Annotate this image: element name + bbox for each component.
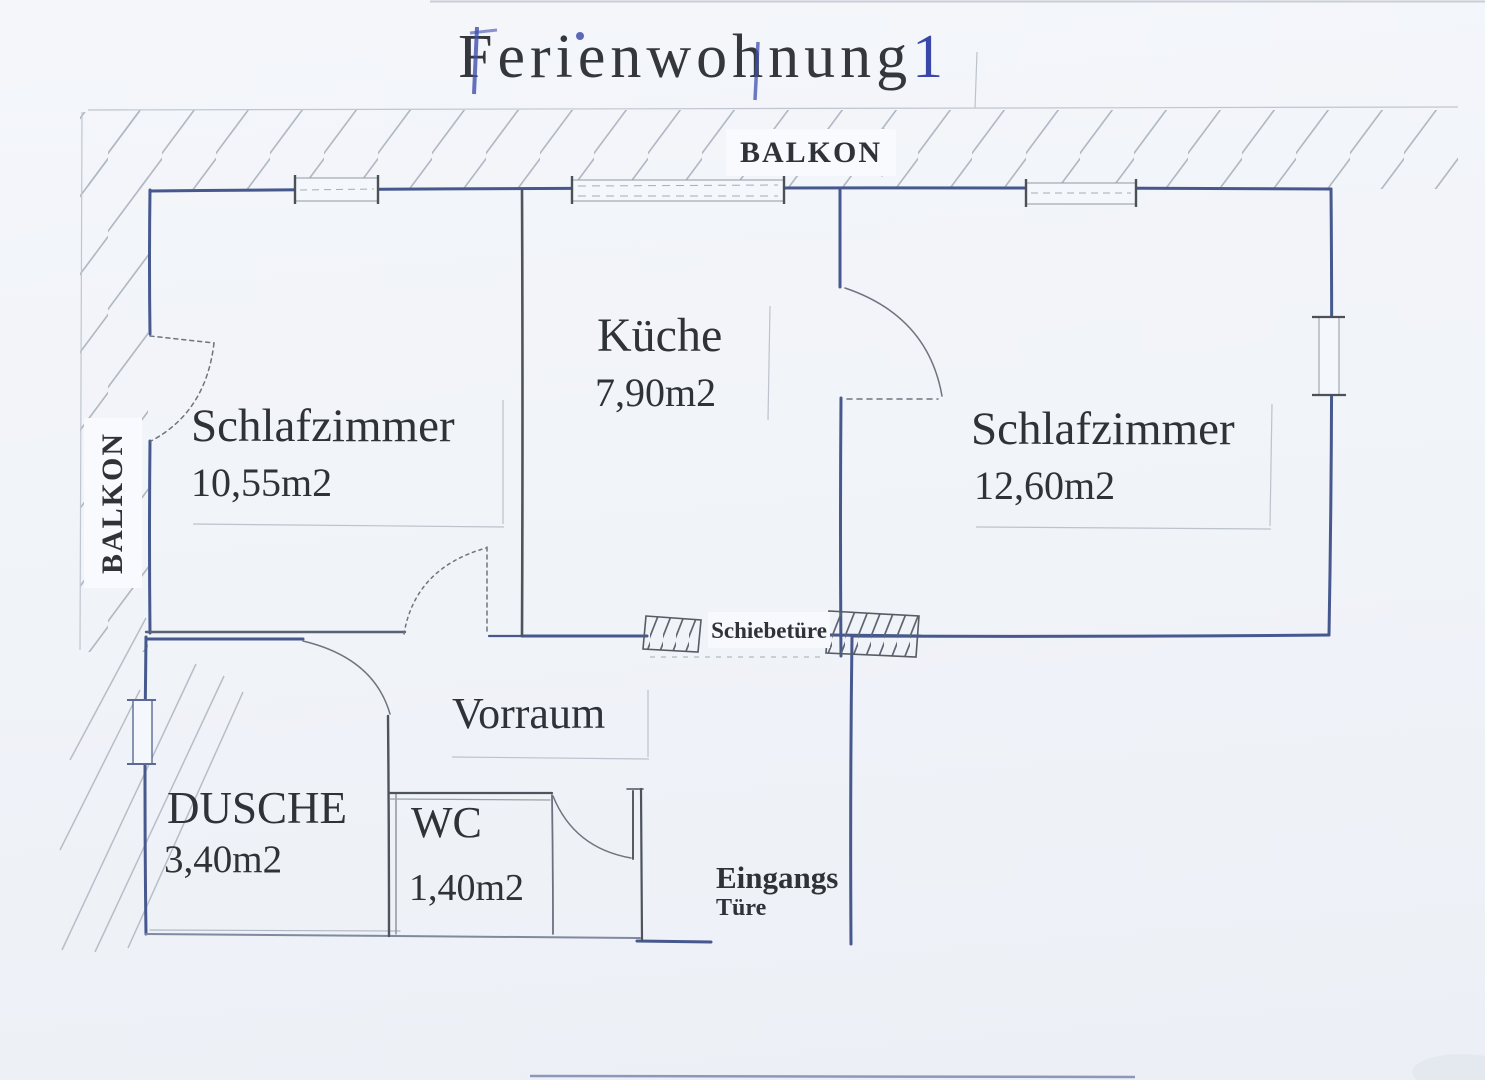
sliding-pocket-right [826, 611, 919, 657]
sliding-door-label: Schiebetüre [708, 612, 830, 648]
room-label-hallway: Vorraum [452, 692, 605, 736]
window-top-right [1026, 179, 1136, 207]
room-area-bedroom-left: 10,55m2 [191, 463, 332, 503]
bedroom-door-arc [404, 548, 486, 634]
page-title: Ferienwohnung1 [458, 26, 948, 88]
sliding-pocket-left [643, 616, 701, 652]
balcony-door-leaf [150, 336, 214, 343]
room-area-bedroom-right: 12,60m2 [974, 466, 1115, 506]
window-top-left [295, 175, 378, 204]
room-label-kitchen: Küche [597, 312, 722, 360]
entrance-door-label-line2: Türe [716, 896, 766, 920]
kitchen-door-arc [845, 288, 942, 396]
title-text: Ferienwohnung [458, 23, 912, 91]
room-label-wc: WC [411, 801, 482, 845]
room-area-shower: 3,40m2 [164, 840, 282, 879]
room-area-wc: 1,40m2 [409, 869, 524, 907]
entrance-door-label-line1: Eingangs [716, 862, 838, 893]
wc-door-arc [553, 796, 631, 858]
floorplan-page: Ferienwohnung1 BALKON BALKON Schlafzimme… [0, 0, 1485, 1080]
balcony-left-label: BALKON [84, 418, 142, 588]
title-number: 1 [912, 23, 948, 91]
room-label-bedroom-right: Schlafzimmer [971, 406, 1235, 453]
room-label-shower: DUSCHE [167, 786, 347, 831]
window-shower-wall [127, 700, 156, 764]
room-area-kitchen: 7,90m2 [595, 373, 716, 413]
window-right-wall [1312, 317, 1346, 395]
window-top-middle [572, 176, 784, 204]
door-swings [150, 288, 942, 858]
room-label-bedroom-left: Schlafzimmer [191, 403, 455, 450]
balcony-left-text: BALKON [98, 432, 128, 574]
shower-door-arc [303, 641, 390, 714]
balcony-top-label: BALKON [726, 129, 896, 176]
